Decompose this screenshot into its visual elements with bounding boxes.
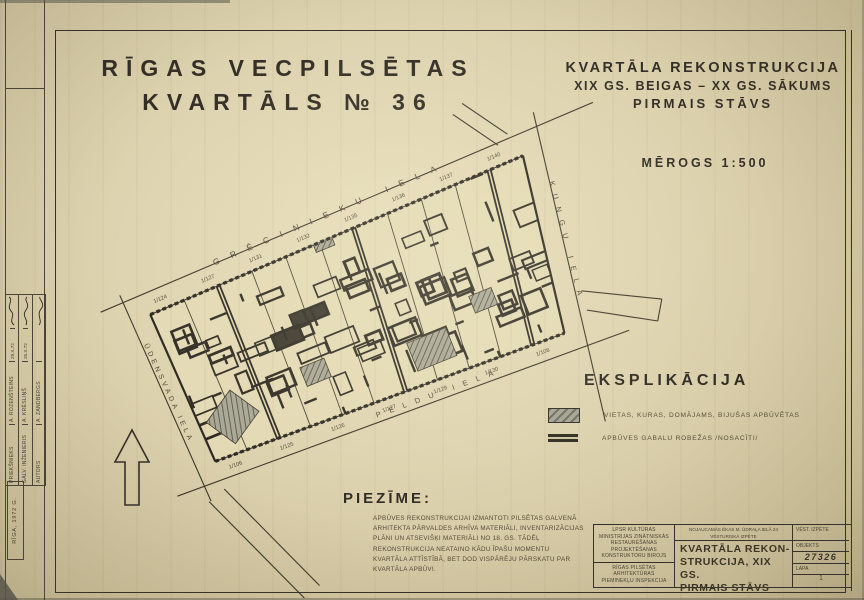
- legend-item-plot-boundaries: APBŪVES GABALU ROBEŽAS /NOSACĪTI/: [548, 434, 758, 442]
- drawing-title: KVARTĀLA REKON- STRUKCIJA, XIX GS. PIRMA…: [675, 541, 792, 594]
- title-block-meta: VĒST. IZPĒTE OBJEKTS 27326 LAPA 1: [793, 525, 849, 587]
- note-block: PIEZĪME: APBŪVES REKONSTRUKCIJAI IZMANTO…: [343, 490, 603, 575]
- signature-strip: PRIEKŠNIEKS A. ROZENŠTEINS 29.X.72 GALV.…: [5, 296, 44, 486]
- signer-role: GALV. INŽENIERIS: [22, 424, 28, 485]
- sheet-number-label: LAPA: [793, 564, 849, 575]
- signature-date: 29.X.72: [10, 328, 15, 361]
- drawing-heading: KVARTĀLA REKONSTRUKCIJA XIX GS. BEIGAS –…: [548, 60, 858, 111]
- signer-role: AUTORS: [36, 424, 42, 485]
- margin-divider: [5, 88, 44, 89]
- legend: EKSPLIKĀCIJA VIETAS, KURAS, DOMĀJAMS, BI…: [548, 372, 853, 390]
- project-line-1: NOJAUCAMĀS ĒKAS M. ŪDRAĻA IELĀ 24: [675, 527, 792, 534]
- title-block-main: NOJAUCAMĀS ĒKAS M. ŪDRAĻA IELĀ 24 VĒSTUR…: [675, 525, 793, 587]
- title-block-orgs: LPSR KULTŪRAS MINISTRIJAS ZINĀTNISKĀS RE…: [594, 525, 675, 587]
- stage-label: VĒST. IZPĒTE: [793, 525, 849, 541]
- org-name-1: LPSR KULTŪRAS MINISTRIJAS ZINĀTNISKĀS RE…: [594, 525, 674, 562]
- project-name: NOJAUCAMĀS ĒKAS M. ŪDRAĻA IELĀ 24 VĒSTUR…: [675, 525, 792, 541]
- scale-label: MĒROGS 1:500: [595, 156, 815, 170]
- sheet-frame-outer-line: [851, 30, 852, 591]
- drawing-title-line-2: STRUKCIJA, XIX GS.: [680, 556, 792, 582]
- sheet-number: 1: [793, 575, 849, 587]
- legend-item-label: APBŪVES GABALU ROBEŽAS /NOSACĪTI/: [602, 435, 758, 442]
- drawing-title-line-3: PIRMAIS STĀVS: [680, 582, 792, 595]
- signature-scribble: [20, 295, 30, 328]
- object-label: OBJEKTS: [793, 541, 849, 552]
- signature-row: AUTORS A. ZANDBERGS: [32, 295, 45, 485]
- signer-name: A. ROZENŠTEINS: [9, 361, 15, 424]
- signer-name: A. KRĒSLIŅŠ: [22, 361, 28, 424]
- hatched-area-swatch: [548, 408, 580, 423]
- note-body: APBŪVES REKONSTRUKCIJAI IZMANTOTI PILSĒT…: [373, 514, 585, 575]
- drawing-sheet: GRĒCINIEKU IELAKUNGU IELAPELDU IELAŪDENS…: [0, 0, 864, 600]
- signature-date: 25.X.72: [23, 328, 28, 361]
- title-block: LPSR KULTŪRAS MINISTRIJAS ZINĀTNISKĀS RE…: [593, 524, 852, 588]
- drawing-title-line-1: KVARTĀLA REKON-: [680, 543, 792, 556]
- place-year-label: RĪGA, 1972 G.: [7, 481, 24, 560]
- heading-line-3: PIRMAIS STĀVS: [548, 96, 858, 111]
- signature-scribble: [34, 295, 44, 328]
- signature-table: PRIEKŠNIEKS A. ROZENŠTEINS 29.X.72 GALV.…: [5, 294, 46, 486]
- project-line-2: VĒSTURISKĀ IZPĒTE: [675, 534, 792, 541]
- legend-heading: EKSPLIKĀCIJA: [584, 372, 853, 390]
- double-line-swatch: [548, 434, 578, 442]
- page-title: RĪGAS VECPILSĒTAS KVARTĀLS № 36: [88, 55, 488, 116]
- heading-line-1: KVARTĀLA REKONSTRUKCIJA: [548, 60, 858, 76]
- signature-row: GALV. INŽENIERIS A. KRĒSLIŅŠ 25.X.72: [18, 295, 31, 485]
- org-name-2: RĪGAS PILSĒTAS ARHITEKTŪRAS PIEMINEKĻU I…: [594, 562, 674, 588]
- title-line-1: RĪGAS VECPILSĒTAS: [88, 55, 488, 82]
- title-line-2: KVARTĀLS № 36: [88, 89, 488, 116]
- signer-name: A. ZANDBERGS: [36, 361, 42, 424]
- object-number: 27326: [793, 552, 849, 564]
- signature-row: PRIEKŠNIEKS A. ROZENŠTEINS 29.X.72: [6, 295, 18, 485]
- legend-item-built-areas: VIETAS, KURAS, DOMĀJAMS, BIJUŠAS APBŪVĒT…: [548, 408, 800, 423]
- note-heading: PIEZĪME:: [343, 490, 603, 507]
- legend-item-label: VIETAS, KURAS, DOMĀJAMS, BIJUŠAS APBŪVĒT…: [604, 412, 800, 419]
- scan-edge-artifact-top: [0, 0, 230, 3]
- signer-role: PRIEKŠNIEKS: [9, 424, 15, 485]
- signature-scribble: [7, 295, 17, 328]
- heading-line-2: XIX GS. BEIGAS – XX GS. SĀKUMS: [548, 79, 858, 93]
